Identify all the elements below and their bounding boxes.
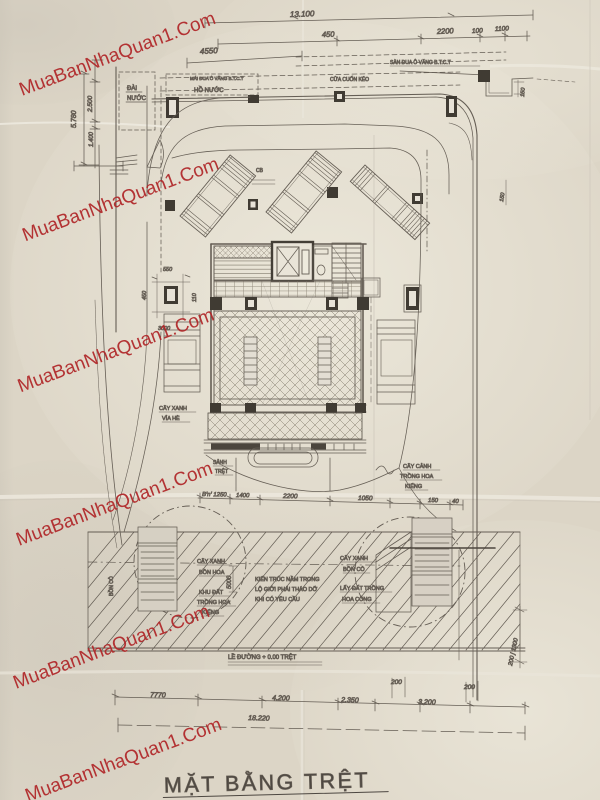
svg-text:200: 200 [463, 684, 475, 691]
svg-text:150: 150 [520, 87, 527, 98]
svg-text:NƯỚC: NƯỚC [127, 95, 147, 102]
svg-text:110: 110 [192, 292, 198, 302]
svg-text:100: 100 [472, 27, 484, 35]
svg-text:CB: CB [256, 168, 264, 174]
svg-text:LỀ ĐƯỜNG + 0.00 TRỆT: LỀ ĐƯỜNG + 0.00 TRỆT [228, 653, 297, 661]
svg-text:2200: 2200 [282, 493, 298, 500]
svg-text:18.220: 18.220 [248, 715, 270, 723]
svg-text:1050: 1050 [358, 495, 373, 502]
svg-text:13.100: 13.100 [290, 9, 315, 19]
svg-text:5000: 5000 [227, 575, 233, 589]
svg-text:550: 550 [163, 267, 173, 273]
svg-text:1100: 1100 [495, 25, 510, 33]
svg-text:HỒ NƯỚC: HỒ NƯỚC [194, 87, 224, 94]
svg-text:450: 450 [322, 30, 336, 39]
svg-text:ĐÀI: ĐÀI [127, 85, 137, 92]
svg-text:5.780: 5.780 [71, 110, 78, 128]
svg-text:2.350: 2.350 [340, 697, 359, 704]
svg-text:MÁI ĐUA Ô VĂNG B.T.C.T: MÁI ĐUA Ô VĂNG B.T.C.T [190, 75, 244, 81]
svg-text:40: 40 [452, 499, 459, 505]
svg-text:Bꞌnꞌ 1250: Bꞌnꞌ 1250 [202, 492, 227, 498]
svg-text:1400: 1400 [236, 493, 250, 499]
svg-text:LỘ GIỚI PHẢI THÁO DỠ: LỘ GIỚI PHẢI THÁO DỠ [255, 586, 317, 593]
svg-text:4550: 4550 [200, 46, 219, 56]
svg-text:CỬA CUỐN KÉO: CỬA CUỐN KÉO [330, 76, 369, 83]
svg-text:KIỂNG: KIỂNG [405, 483, 422, 490]
svg-text:KIẾN TRÚC NẰM TRONG: KIẾN TRÚC NẰM TRONG [255, 575, 320, 583]
svg-text:CÂY XANH: CÂY XANH [197, 558, 225, 565]
svg-text:BỒN CỎ: BỒN CỎ [343, 566, 365, 573]
svg-text:3.200: 3.200 [418, 699, 436, 706]
svg-text:2.500: 2.500 [87, 95, 94, 113]
svg-text:BỒN HOA: BỒN HOA [199, 569, 225, 576]
svg-text:LẤY ĐẤT TRỒNG: LẤY ĐẤT TRỒNG [340, 585, 384, 592]
svg-text:CÂY CẢNH: CÂY CẢNH [403, 463, 431, 470]
svg-text:BỒN CỎ: BỒN CỎ [108, 576, 115, 596]
svg-text:450: 450 [142, 290, 148, 300]
svg-text:CÂY XANH: CÂY XANH [159, 405, 187, 412]
svg-text:200: 200 [390, 679, 402, 686]
svg-text:VỈA HÈ: VỈA HÈ [162, 415, 180, 422]
svg-text:KHU ĐẤT: KHU ĐẤT [199, 589, 224, 596]
svg-text:TRỒNG HOA: TRỒNG HOA [400, 473, 434, 480]
svg-text:SẢNH: SẢNH [213, 459, 227, 466]
svg-text:2200: 2200 [436, 26, 455, 36]
svg-text:CÂY XANH: CÂY XANH [340, 555, 368, 562]
svg-text:4.200: 4.200 [272, 695, 290, 702]
svg-text:HOA CÔNG: HOA CÔNG [342, 596, 372, 603]
svg-text:150: 150 [428, 498, 439, 504]
svg-text:KHI CÓ YÊU CẦU: KHI CÓ YÊU CẦU [255, 595, 300, 603]
svg-text:SÀN ĐUA Ô VĂNG B.T.C.T: SÀN ĐUA Ô VĂNG B.T.C.T [390, 59, 451, 66]
svg-text:1.400: 1.400 [89, 131, 95, 147]
svg-text:TRỆT: TRỆT [215, 467, 228, 475]
svg-text:7770: 7770 [150, 692, 166, 699]
